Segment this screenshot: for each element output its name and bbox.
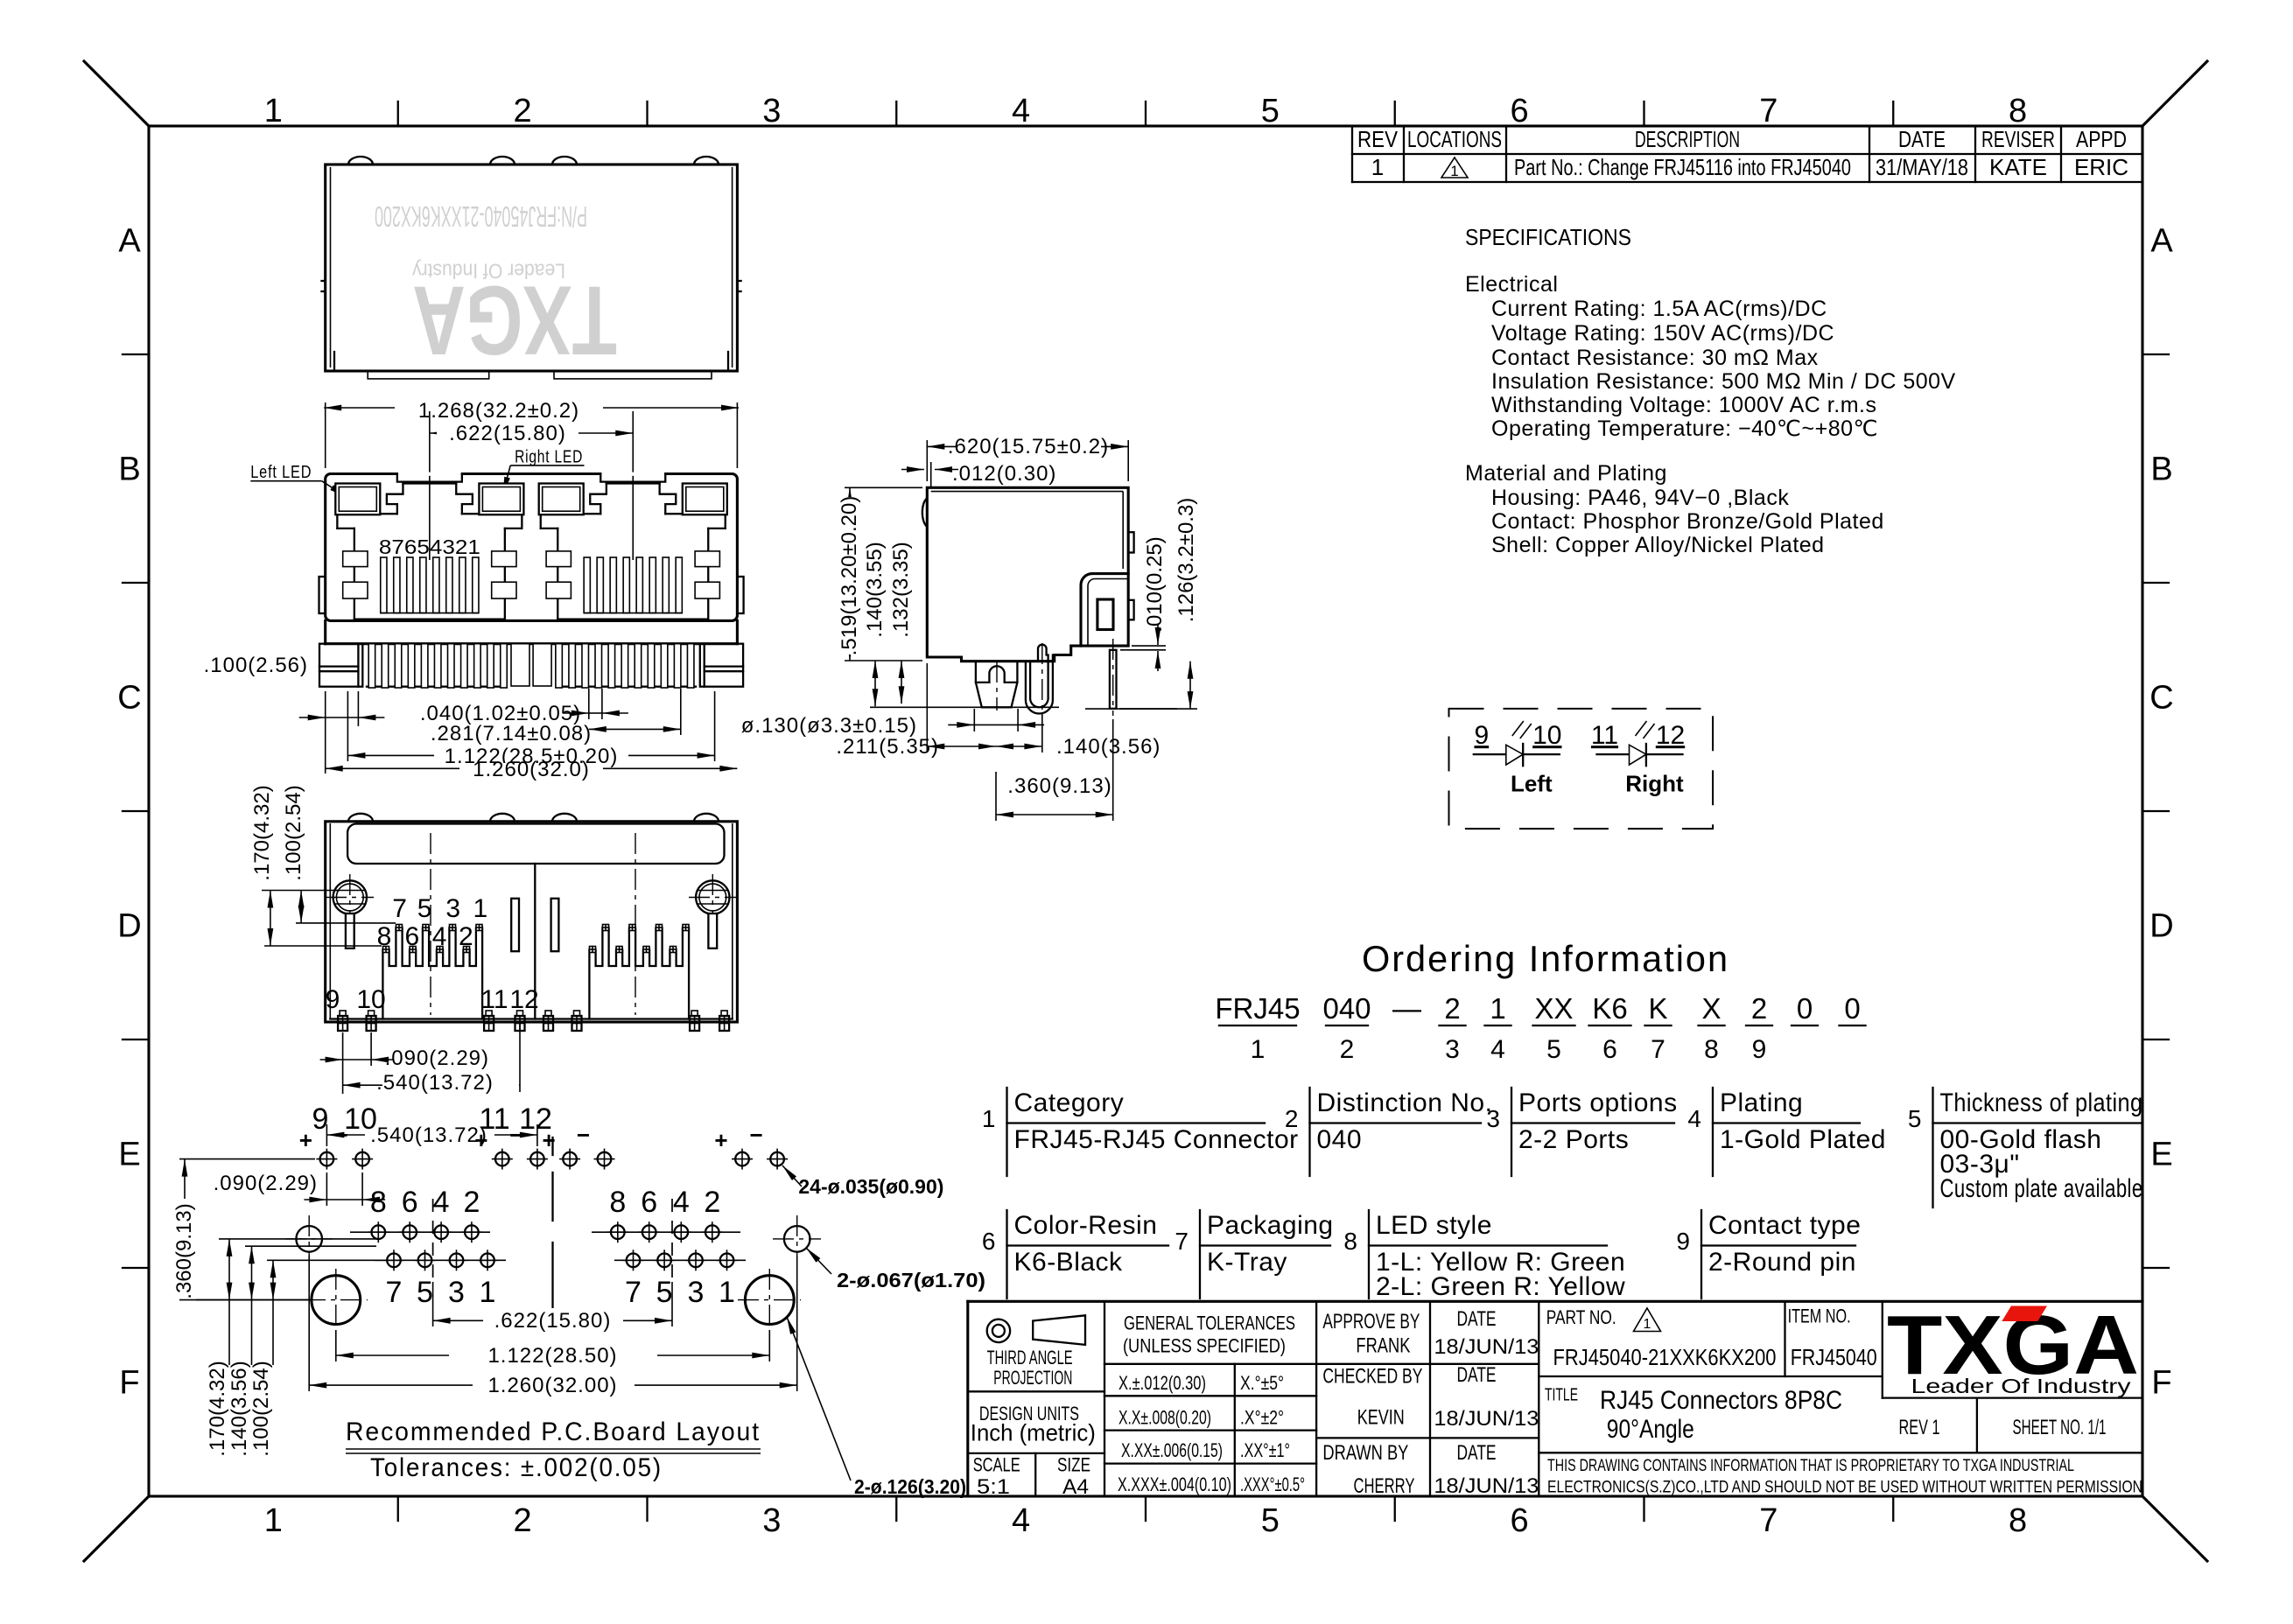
svg-text:2: 2 [514,93,532,129]
svg-text:Ports options: Ports options [1518,1088,1678,1117]
svg-text:87654321: 87654321 [379,535,480,558]
svg-text:GENERAL TOLERANCES: GENERAL TOLERANCES [1124,1312,1295,1333]
svg-text:E: E [118,1137,140,1173]
svg-text:Part No.: Change FRJ45116 int: Part No.: Change FRJ45116 into FRJ45040 [1514,154,1851,180]
svg-text:A: A [2150,223,2173,260]
svg-text:Right LED: Right LED [515,447,583,466]
svg-text:REV 1: REV 1 [1899,1416,1940,1439]
svg-text:10: 10 [1532,721,1561,750]
svg-text:6: 6 [641,1186,657,1219]
svg-text:3: 3 [762,93,781,129]
svg-text:Distinction No.: Distinction No. [1317,1088,1493,1117]
svg-text:Left LED: Left LED [250,463,312,482]
svg-text:.360(9.13): .360(9.13) [172,1203,196,1298]
svg-text:3: 3 [688,1276,705,1309]
svg-text:2-Round pin: 2-Round pin [1708,1248,1856,1277]
svg-text:Recommended P.C.Board Layout: Recommended P.C.Board Layout [346,1417,761,1446]
svg-text:F: F [2151,1365,2171,1402]
svg-text:Contact type: Contact type [1708,1211,1861,1240]
svg-text:.211(5.35): .211(5.35) [836,735,939,759]
svg-text:KEVIN: KEVIN [1357,1405,1405,1429]
svg-text:Packaging: Packaging [1207,1211,1334,1240]
svg-text:1.122(28.50): 1.122(28.50) [487,1344,617,1368]
svg-text:5: 5 [1546,1035,1561,1064]
svg-text:3: 3 [445,894,460,923]
svg-text:ERIC: ERIC [2074,154,2128,180]
svg-text:8: 8 [609,1186,626,1219]
svg-text:.090(2.29): .090(2.29) [385,1046,489,1070]
svg-text:11: 11 [1591,721,1618,750]
svg-text:.090(2.29): .090(2.29) [214,1172,318,1195]
svg-text:.X°±2°: .X°±2° [1240,1406,1284,1428]
svg-text:5: 5 [1261,1502,1280,1539]
svg-text:.132(3.35): .132(3.35) [889,542,913,637]
svg-text:B: B [118,451,140,488]
svg-text:THIS DRAWING CONTAINS INFORMAT: THIS DRAWING CONTAINS INFORMATION THAT I… [1547,1457,2074,1475]
svg-text:REV: REV [1357,126,1399,152]
svg-text:SCALE: SCALE [973,1453,1020,1475]
svg-text:.281(7.14±0.08): .281(7.14±0.08) [431,722,592,745]
svg-text:6: 6 [1602,1035,1617,1064]
svg-text:6: 6 [1511,1502,1529,1539]
svg-text:SPECIFICATIONS: SPECIFICATIONS [1465,224,1631,250]
svg-text:5: 5 [417,1276,433,1309]
svg-text:B: B [2150,451,2172,488]
svg-text:.XX°±1°: .XX°±1° [1240,1439,1290,1461]
svg-text:Thickness of plating: Thickness of plating [1940,1088,2143,1117]
svg-text:ø.130(ø3.3±0.15): ø.130(ø3.3±0.15) [741,714,917,738]
svg-text:3: 3 [1445,1035,1460,1064]
svg-text:6: 6 [1511,93,1529,129]
svg-text:1: 1 [473,894,488,923]
svg-text:THIRD ANGLE: THIRD ANGLE [987,1347,1073,1368]
svg-text:.100(2.56): .100(2.56) [204,654,308,677]
svg-text:X: X [1701,992,1721,1025]
svg-text:Electrical: Electrical [1465,272,1558,297]
svg-text:APPD: APPD [2076,126,2127,152]
svg-text:Custom plate available: Custom plate available [1940,1174,2143,1203]
svg-text:LED style: LED style [1376,1211,1492,1240]
svg-text:7: 7 [1759,93,1778,129]
svg-text:.622(15.80): .622(15.80) [449,422,566,445]
svg-text:.012(0.30): .012(0.30) [952,462,1056,486]
svg-text:1: 1 [1644,1317,1651,1332]
svg-text:1: 1 [719,1276,735,1309]
svg-text:+: + [299,1127,312,1153]
svg-text:−: − [577,1122,590,1148]
svg-text:1: 1 [1450,163,1458,179]
svg-text:2: 2 [704,1186,720,1219]
svg-text:Contact: Phosphor Bronze/Gold: Contact: Phosphor Bronze/Gold Plated [1491,509,1884,534]
svg-text:4: 4 [1012,93,1030,129]
svg-text:0: 0 [1844,992,1860,1025]
svg-text:4: 4 [1687,1105,1701,1132]
svg-text:Plating: Plating [1720,1088,1803,1117]
svg-text:4: 4 [433,1186,450,1219]
svg-text:D: D [117,908,141,945]
svg-text:A: A [118,223,141,260]
svg-text:5: 5 [417,894,432,923]
svg-text:2: 2 [459,922,473,951]
svg-text:18/JUN/13: 18/JUN/13 [1434,1474,1539,1498]
svg-text:A4: A4 [1062,1475,1089,1499]
svg-text:8: 8 [370,1186,387,1219]
svg-text:1.260(32.00): 1.260(32.00) [487,1374,617,1397]
svg-text:8: 8 [1704,1035,1719,1064]
svg-text:90°Angle: 90°Angle [1607,1415,1694,1444]
svg-text:6: 6 [982,1228,996,1255]
svg-text:8: 8 [377,922,392,951]
svg-text:1: 1 [1490,992,1505,1025]
svg-text:.140(3.56): .140(3.56) [1056,735,1161,759]
svg-text:2: 2 [1751,992,1767,1025]
svg-text:.620(15.75±0.2): .620(15.75±0.2) [948,435,1109,458]
svg-text:FRJ45-RJ45 Connector: FRJ45-RJ45 Connector [1014,1125,1299,1154]
svg-text:1: 1 [264,93,283,129]
svg-text:.140(3.56): .140(3.56) [228,1361,251,1456]
svg-text:Leader Of Industry: Leader Of Industry [1911,1375,2132,1397]
svg-text:DATE: DATE [1457,1307,1497,1331]
svg-text:2-L: Green R: Yellow: 2-L: Green R: Yellow [1376,1272,1625,1301]
svg-text:9: 9 [312,1102,329,1136]
svg-text:P/N:FRJ45040-21XXK6KX200: P/N:FRJ45040-21XXK6KX200 [375,200,587,233]
svg-text:6: 6 [402,1186,418,1219]
svg-text:24-ø.035(ø0.90): 24-ø.035(ø0.90) [798,1175,943,1198]
svg-text:.100(2.54): .100(2.54) [282,785,305,880]
svg-text:4: 4 [1012,1502,1030,1539]
svg-text:11: 11 [479,1102,509,1136]
svg-text:APPROVE BY: APPROVE BY [1322,1310,1420,1333]
svg-text:Color-Resin: Color-Resin [1014,1211,1158,1240]
svg-text:1: 1 [264,1502,283,1539]
svg-text:2: 2 [1285,1105,1299,1132]
svg-text:9: 9 [1676,1228,1690,1255]
svg-text:5: 5 [656,1276,673,1309]
svg-text:X.°±5°: X.°±5° [1240,1372,1284,1394]
svg-text:4: 4 [673,1186,690,1219]
svg-text:2: 2 [1340,1035,1355,1064]
svg-text:.519(13.20±0.20): .519(13.20±0.20) [838,496,861,656]
svg-text:ELECTRONICS(S.Z)CO.,LTD AND SH: ELECTRONICS(S.Z)CO.,LTD AND SHOULD NOT B… [1547,1479,2142,1497]
svg-text:4: 4 [1490,1035,1505,1064]
svg-text:FRJ45040: FRJ45040 [1791,1344,1877,1370]
svg-text:X.±.012(0.30): X.±.012(0.30) [1118,1372,1206,1394]
svg-text:KATE: KATE [1989,154,2047,180]
svg-text:RJ45 Connectors 8P8C: RJ45 Connectors 8P8C [1600,1386,1842,1415]
svg-text:SIZE: SIZE [1057,1453,1090,1475]
svg-text:31/MAY/18: 31/MAY/18 [1876,154,1968,180]
svg-text:SHEET NO. 1/1: SHEET NO. 1/1 [2013,1416,2107,1439]
svg-text:Shell: Copper Alloy/Nickel Pl: Shell: Copper Alloy/Nickel Plated [1491,533,1825,557]
svg-text:.360(9.13): .360(9.13) [1007,774,1111,798]
svg-text:Contact Resistance: 30 mΩ Max: Contact Resistance: 30 mΩ Max [1491,346,1819,370]
svg-text:ITEM NO.: ITEM NO. [1788,1305,1851,1327]
svg-text:Tolerances: ±.002(0.05): Tolerances: ±.002(0.05) [370,1453,663,1482]
svg-text:10: 10 [356,985,385,1014]
svg-text:Housing: PA46, 94V−0 ,Black: Housing: PA46, 94V−0 ,Black [1491,486,1789,510]
svg-text:Left: Left [1511,771,1553,797]
svg-text:8: 8 [2009,1502,2027,1539]
svg-text:DATE: DATE [1457,1441,1497,1465]
svg-text:X.X±.008(0.20): X.X±.008(0.20) [1118,1406,1211,1428]
svg-text:E: E [2150,1137,2172,1173]
svg-text:+: + [714,1127,727,1153]
svg-text:10: 10 [344,1102,377,1136]
svg-text:1: 1 [1371,154,1384,180]
svg-text:040: 040 [1317,1125,1363,1154]
svg-text:K-Tray: K-Tray [1207,1248,1287,1277]
svg-text:DRAWN BY: DRAWN BY [1322,1441,1408,1465]
svg-text:8: 8 [2009,93,2027,129]
svg-text:DATE: DATE [1898,126,1946,152]
svg-text:1: 1 [1251,1035,1266,1064]
svg-text:1.260(32.0): 1.260(32.0) [473,758,590,781]
svg-text:9: 9 [326,985,340,1014]
svg-text:9: 9 [1474,721,1489,750]
svg-text:K: K [1648,992,1667,1025]
svg-text:PROJECTION: PROJECTION [993,1367,1072,1389]
svg-text:.100(2.54): .100(2.54) [249,1361,273,1456]
svg-text:Ordering Information: Ordering Information [1362,938,1729,979]
svg-text:9: 9 [1752,1035,1767,1064]
svg-text:PART NO.: PART NO. [1546,1306,1616,1328]
svg-text:1: 1 [982,1105,996,1132]
svg-text:.140(3.55): .140(3.55) [863,542,887,637]
svg-text:0: 0 [1797,992,1813,1025]
svg-text:1.268(32.2±0.2): 1.268(32.2±0.2) [418,399,579,423]
svg-text:12: 12 [509,985,538,1014]
svg-text:8: 8 [1343,1228,1357,1255]
svg-text:2-ø.126(3.20): 2-ø.126(3.20) [854,1475,966,1498]
svg-text:2-2 Ports: 2-2 Ports [1518,1125,1629,1154]
svg-text:7: 7 [386,1276,403,1309]
svg-text:11: 11 [480,985,508,1014]
svg-text:(UNLESS SPECIFIED): (UNLESS SPECIFIED) [1123,1335,1286,1357]
svg-text:LOCATIONS: LOCATIONS [1407,126,1502,152]
svg-text:K6-Black: K6-Black [1014,1248,1124,1277]
svg-text:040: 040 [1322,992,1371,1025]
svg-text:2: 2 [463,1186,480,1219]
svg-text:−: − [750,1122,763,1148]
svg-text:5:1: 5:1 [977,1475,1010,1499]
svg-text:7: 7 [625,1276,642,1309]
svg-text:K6: K6 [1592,992,1627,1025]
svg-text:DATE: DATE [1457,1363,1497,1387]
svg-text:XX: XX [1534,992,1573,1025]
svg-text:5: 5 [1261,93,1280,129]
svg-text:Material and Plating: Material and Plating [1465,461,1667,486]
svg-text:—: — [1392,992,1421,1025]
svg-text:2-ø.067(ø1.70): 2-ø.067(ø1.70) [837,1269,985,1291]
svg-text:Insulation Resistance: 500 MΩ: Insulation Resistance: 500 MΩ Min / DC 5… [1491,369,1956,394]
svg-text:1: 1 [480,1276,496,1309]
svg-text:12: 12 [1656,721,1685,750]
svg-text:X.XXX±.004(0.10): X.XXX±.004(0.10) [1118,1473,1231,1495]
svg-text:Operating Temperature: −40℃~+: Operating Temperature: −40℃~+80℃ [1491,416,1878,441]
svg-text:Right: Right [1625,771,1684,797]
svg-text:.540(13.72): .540(13.72) [370,1123,487,1147]
svg-text:18/JUN/13: 18/JUN/13 [1434,1335,1539,1359]
svg-text:Inch (metric): Inch (metric) [971,1419,1096,1445]
svg-text:CHECKED BY: CHECKED BY [1322,1365,1422,1389]
svg-text:4: 4 [432,922,447,951]
svg-text:D: D [2149,908,2173,945]
svg-text:TITLE: TITLE [1545,1386,1578,1405]
svg-text:.540(13.72): .540(13.72) [376,1071,494,1095]
svg-text:C: C [2149,680,2173,717]
svg-text:DESCRIPTION: DESCRIPTION [1635,126,1740,152]
svg-text:X.XX±.006(0.15): X.XX±.006(0.15) [1121,1439,1223,1461]
svg-text:18/JUN/13: 18/JUN/13 [1434,1407,1539,1431]
svg-text:2: 2 [1444,992,1460,1025]
svg-text:Current Rating: 1.5A AC(rms)/: Current Rating: 1.5A AC(rms)/DC [1491,297,1827,321]
svg-text:3: 3 [448,1276,465,1309]
svg-text:.170(4.32): .170(4.32) [250,785,274,880]
svg-text:CHERRY: CHERRY [1354,1474,1415,1498]
svg-text:Voltage Rating: 150V AC(rms)/: Voltage Rating: 150V AC(rms)/DC [1491,321,1834,346]
svg-text:.170(4.32): .170(4.32) [206,1361,229,1456]
svg-text:2: 2 [514,1502,532,1539]
svg-text:FRANK: FRANK [1356,1334,1410,1358]
svg-text:3: 3 [762,1502,781,1539]
svg-text:Category: Category [1014,1088,1125,1117]
svg-text:7: 7 [1759,1502,1778,1539]
svg-text:.622(15.80): .622(15.80) [494,1309,612,1333]
svg-text:.126(3.2±0.3): .126(3.2±0.3) [1175,498,1198,623]
svg-text:FRJ45040-21XXK6KX200: FRJ45040-21XXK6KX200 [1553,1344,1777,1370]
svg-text:FRJ45: FRJ45 [1215,992,1300,1025]
svg-text:C: C [117,680,141,717]
svg-text:1-Gold Plated: 1-Gold Plated [1720,1125,1886,1154]
svg-text:6: 6 [405,922,420,951]
svg-text:5: 5 [1908,1105,1922,1132]
svg-text:7: 7 [392,894,407,923]
svg-text:7: 7 [1651,1035,1665,1064]
svg-text:TXGA: TXGA [412,266,617,375]
svg-text:3: 3 [1486,1105,1500,1132]
svg-text:.XXX°±0.5°: .XXX°±0.5° [1240,1473,1305,1495]
svg-text:REVISER: REVISER [1981,126,2055,152]
svg-text:12: 12 [519,1102,552,1136]
svg-text:F: F [119,1365,139,1402]
svg-text:Withstanding Voltage: 1000V A: Withstanding Voltage: 1000V AC r.m.s [1491,393,1876,417]
svg-text:7: 7 [1175,1228,1189,1255]
svg-text:.010(0.25): .010(0.25) [1143,536,1167,632]
